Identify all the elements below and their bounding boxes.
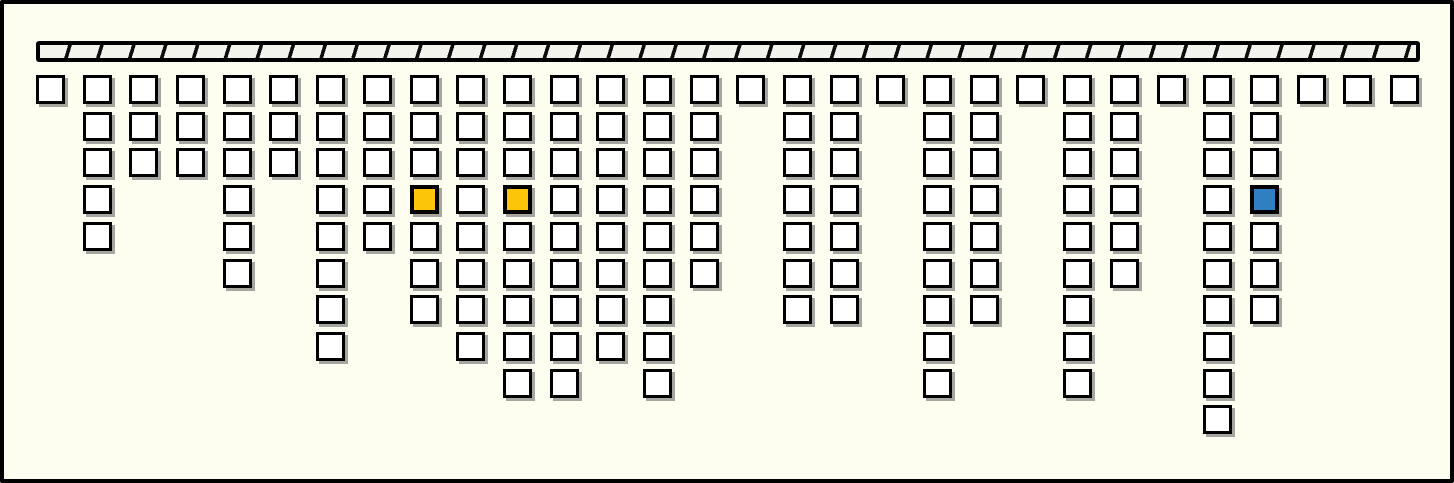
node-cell[interactable] bbox=[970, 75, 999, 104]
node-cell[interactable] bbox=[1203, 369, 1232, 398]
node-cell[interactable] bbox=[503, 259, 532, 288]
node-cell[interactable] bbox=[363, 75, 392, 104]
node-cell[interactable] bbox=[316, 148, 345, 177]
node-cell[interactable] bbox=[83, 185, 112, 214]
node-cell[interactable] bbox=[923, 295, 952, 324]
node-cell[interactable] bbox=[1063, 148, 1092, 177]
node-cell[interactable] bbox=[503, 112, 532, 141]
node-cell[interactable] bbox=[1250, 222, 1279, 251]
node-cell[interactable] bbox=[83, 148, 112, 177]
node-cell[interactable] bbox=[1203, 295, 1232, 324]
node-cell[interactable] bbox=[550, 222, 579, 251]
visualization-canvas bbox=[0, 0, 1454, 483]
node-cell[interactable] bbox=[1203, 75, 1232, 104]
node-cell[interactable] bbox=[550, 75, 579, 104]
node-cell[interactable] bbox=[596, 295, 625, 324]
node-cell[interactable] bbox=[923, 185, 952, 214]
node-cell[interactable] bbox=[410, 222, 439, 251]
node-cell-match[interactable] bbox=[410, 185, 439, 214]
node-cell[interactable] bbox=[643, 295, 672, 324]
node-cell[interactable] bbox=[1203, 405, 1232, 434]
node-cell[interactable] bbox=[456, 222, 485, 251]
node-cell[interactable] bbox=[269, 148, 298, 177]
node-cell[interactable] bbox=[876, 75, 905, 104]
node-cell[interactable] bbox=[923, 75, 952, 104]
node-cell[interactable] bbox=[1250, 259, 1279, 288]
node-cell[interactable] bbox=[316, 295, 345, 324]
node-cell[interactable] bbox=[1250, 112, 1279, 141]
node-cell[interactable] bbox=[176, 148, 205, 177]
node-cell[interactable] bbox=[456, 75, 485, 104]
node-cell[interactable] bbox=[1063, 259, 1092, 288]
node-cell[interactable] bbox=[410, 112, 439, 141]
node-cell[interactable] bbox=[596, 112, 625, 141]
node-cell[interactable] bbox=[596, 148, 625, 177]
node-cell[interactable] bbox=[316, 259, 345, 288]
node-cell[interactable] bbox=[456, 332, 485, 361]
node-cell[interactable] bbox=[410, 259, 439, 288]
node-cell[interactable] bbox=[643, 222, 672, 251]
node-cell[interactable] bbox=[1110, 185, 1139, 214]
node-cell[interactable] bbox=[643, 112, 672, 141]
node-cell[interactable] bbox=[36, 75, 65, 104]
node-cell[interactable] bbox=[410, 75, 439, 104]
node-cell[interactable] bbox=[550, 148, 579, 177]
node-cell[interactable] bbox=[643, 259, 672, 288]
node-cell[interactable] bbox=[830, 185, 859, 214]
node-cell[interactable] bbox=[269, 112, 298, 141]
node-cell[interactable] bbox=[503, 332, 532, 361]
node-cell[interactable] bbox=[316, 112, 345, 141]
node-cell[interactable] bbox=[690, 112, 719, 141]
node-cell[interactable] bbox=[129, 148, 158, 177]
canvas-frame bbox=[0, 0, 1454, 483]
node-cell[interactable] bbox=[550, 332, 579, 361]
node-cell[interactable] bbox=[643, 185, 672, 214]
node-cell[interactable] bbox=[1063, 75, 1092, 104]
node-cell[interactable] bbox=[970, 259, 999, 288]
node-cell[interactable] bbox=[129, 112, 158, 141]
node-cell[interactable] bbox=[223, 185, 252, 214]
node-cell[interactable] bbox=[783, 185, 812, 214]
node-cell[interactable] bbox=[363, 185, 392, 214]
node-cell[interactable] bbox=[690, 75, 719, 104]
node-cell[interactable] bbox=[970, 185, 999, 214]
node-cell[interactable] bbox=[923, 222, 952, 251]
node-cell[interactable] bbox=[783, 222, 812, 251]
node-cell[interactable] bbox=[970, 222, 999, 251]
node-cell[interactable] bbox=[923, 148, 952, 177]
node-cell[interactable] bbox=[690, 222, 719, 251]
node-cell[interactable] bbox=[1250, 75, 1279, 104]
node-cell[interactable] bbox=[269, 75, 298, 104]
node-cell[interactable] bbox=[1203, 112, 1232, 141]
node-cell[interactable] bbox=[503, 222, 532, 251]
node-cell[interactable] bbox=[503, 148, 532, 177]
node-cell[interactable] bbox=[1203, 259, 1232, 288]
node-cell[interactable] bbox=[1390, 75, 1419, 104]
node-cell[interactable] bbox=[550, 295, 579, 324]
node-cell[interactable] bbox=[643, 332, 672, 361]
node-cell[interactable] bbox=[316, 332, 345, 361]
node-cell[interactable] bbox=[643, 148, 672, 177]
node-cell[interactable] bbox=[1063, 369, 1092, 398]
node-cell-match[interactable] bbox=[503, 185, 532, 214]
node-cell[interactable] bbox=[456, 112, 485, 141]
node-cell[interactable] bbox=[783, 259, 812, 288]
node-cell[interactable] bbox=[456, 259, 485, 288]
node-cell[interactable] bbox=[1110, 75, 1139, 104]
node-cell[interactable] bbox=[363, 112, 392, 141]
node-cell[interactable] bbox=[690, 185, 719, 214]
node-cell[interactable] bbox=[83, 75, 112, 104]
node-cell[interactable] bbox=[456, 185, 485, 214]
node-cell[interactable] bbox=[783, 75, 812, 104]
node-cell[interactable] bbox=[1250, 148, 1279, 177]
node-cell[interactable] bbox=[550, 185, 579, 214]
node-cell[interactable] bbox=[223, 222, 252, 251]
node-cell-selection[interactable] bbox=[1250, 185, 1279, 214]
node-cell[interactable] bbox=[1063, 295, 1092, 324]
node-cell[interactable] bbox=[503, 295, 532, 324]
node-cell[interactable] bbox=[830, 259, 859, 288]
node-cell[interactable] bbox=[923, 332, 952, 361]
node-cell[interactable] bbox=[1110, 259, 1139, 288]
node-cell[interactable] bbox=[1250, 295, 1279, 324]
node-cell[interactable] bbox=[643, 369, 672, 398]
node-cell[interactable] bbox=[503, 369, 532, 398]
node-cell[interactable] bbox=[550, 369, 579, 398]
node-cell[interactable] bbox=[643, 75, 672, 104]
node-cell[interactable] bbox=[830, 295, 859, 324]
node-cell[interactable] bbox=[596, 332, 625, 361]
root-node-bar[interactable] bbox=[36, 41, 1420, 62]
node-cell[interactable] bbox=[176, 75, 205, 104]
node-cell[interactable] bbox=[1063, 222, 1092, 251]
node-cell[interactable] bbox=[596, 185, 625, 214]
node-cell[interactable] bbox=[1110, 222, 1139, 251]
node-cell[interactable] bbox=[1203, 332, 1232, 361]
node-cell[interactable] bbox=[223, 75, 252, 104]
node-cell[interactable] bbox=[410, 295, 439, 324]
node-cell[interactable] bbox=[830, 222, 859, 251]
node-cell[interactable] bbox=[970, 112, 999, 141]
node-cell[interactable] bbox=[410, 148, 439, 177]
node-cell[interactable] bbox=[1016, 75, 1045, 104]
node-cell[interactable] bbox=[830, 112, 859, 141]
node-cell[interactable] bbox=[596, 259, 625, 288]
node-cell[interactable] bbox=[1063, 185, 1092, 214]
node-cell[interactable] bbox=[690, 259, 719, 288]
node-cell[interactable] bbox=[830, 75, 859, 104]
node-cell[interactable] bbox=[550, 112, 579, 141]
node-cell[interactable] bbox=[1063, 112, 1092, 141]
node-cell[interactable] bbox=[456, 148, 485, 177]
node-cell[interactable] bbox=[1157, 75, 1186, 104]
node-cell[interactable] bbox=[83, 112, 112, 141]
node-cell[interactable] bbox=[1063, 332, 1092, 361]
node-cell[interactable] bbox=[503, 75, 532, 104]
node-cell[interactable] bbox=[923, 259, 952, 288]
node-cell[interactable] bbox=[923, 112, 952, 141]
node-cell[interactable] bbox=[736, 75, 765, 104]
node-cell[interactable] bbox=[316, 185, 345, 214]
node-cell[interactable] bbox=[783, 112, 812, 141]
node-cell[interactable] bbox=[223, 259, 252, 288]
node-cell[interactable] bbox=[596, 222, 625, 251]
node-cell[interactable] bbox=[129, 75, 158, 104]
node-cell[interactable] bbox=[1203, 185, 1232, 214]
node-cell[interactable] bbox=[1110, 112, 1139, 141]
node-cell[interactable] bbox=[316, 222, 345, 251]
node-cell[interactable] bbox=[1203, 148, 1232, 177]
node-cell[interactable] bbox=[970, 295, 999, 324]
node-cell[interactable] bbox=[830, 148, 859, 177]
node-cell[interactable] bbox=[223, 148, 252, 177]
node-cell[interactable] bbox=[1343, 75, 1372, 104]
node-cell[interactable] bbox=[1203, 222, 1232, 251]
node-cell[interactable] bbox=[550, 259, 579, 288]
node-cell[interactable] bbox=[783, 295, 812, 324]
node-cell[interactable] bbox=[316, 75, 345, 104]
node-cell[interactable] bbox=[83, 222, 112, 251]
node-cell[interactable] bbox=[923, 369, 952, 398]
node-cell[interactable] bbox=[783, 148, 812, 177]
node-cell[interactable] bbox=[1297, 75, 1326, 104]
node-cell[interactable] bbox=[223, 112, 252, 141]
node-cell[interactable] bbox=[596, 75, 625, 104]
node-cell[interactable] bbox=[970, 148, 999, 177]
node-cell[interactable] bbox=[690, 148, 719, 177]
node-cell[interactable] bbox=[363, 222, 392, 251]
node-cell[interactable] bbox=[176, 112, 205, 141]
node-cell[interactable] bbox=[456, 295, 485, 324]
node-cell[interactable] bbox=[1110, 148, 1139, 177]
node-cell[interactable] bbox=[363, 148, 392, 177]
